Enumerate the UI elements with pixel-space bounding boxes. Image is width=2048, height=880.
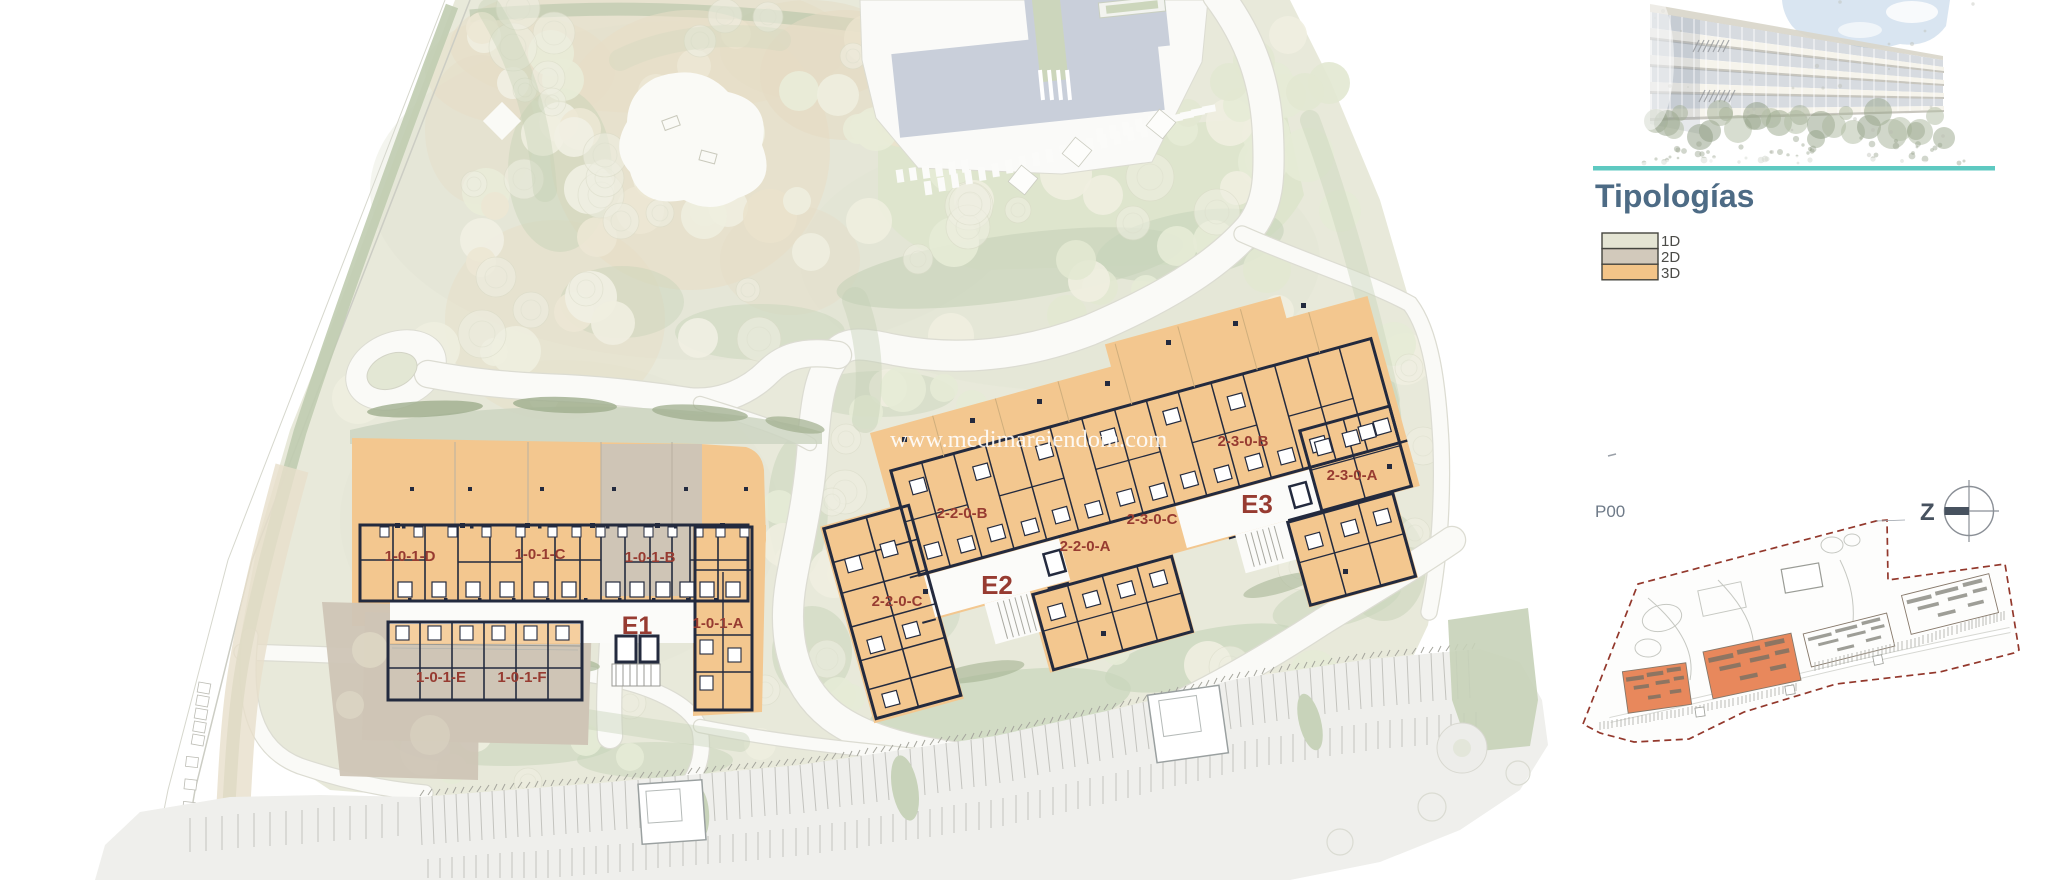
svg-text:www.medimareiendom.com: www.medimareiendom.com <box>890 426 1167 453</box>
svg-text:E2: E2 <box>981 570 1013 600</box>
svg-text:2-3-0-B: 2-3-0-B <box>1218 433 1269 450</box>
svg-text:E1: E1 <box>622 612 653 640</box>
svg-text:1-0-1-F: 1-0-1-F <box>497 669 546 686</box>
svg-text:1-0-1-D: 1-0-1-D <box>385 548 436 565</box>
svg-text:1-0-1-B: 1-0-1-B <box>625 549 676 566</box>
svg-text:2-2-0-B: 2-2-0-B <box>937 505 988 522</box>
svg-text:Z: Z <box>1920 499 1935 526</box>
svg-text:Tipologías: Tipologías <box>1595 178 1754 214</box>
svg-text:P00: P00 <box>1595 502 1625 521</box>
svg-text:2-2-0-C: 2-2-0-C <box>872 593 923 610</box>
svg-text:1D: 1D <box>1661 233 1680 250</box>
svg-text:2-3-0-A: 2-3-0-A <box>1327 467 1378 484</box>
svg-text:1-0-1-E: 1-0-1-E <box>416 669 466 686</box>
svg-text:1-0-1-A: 1-0-1-A <box>693 615 744 632</box>
svg-text:E3: E3 <box>1241 489 1273 519</box>
svg-text:1-0-1-C: 1-0-1-C <box>515 546 566 563</box>
svg-text:3D: 3D <box>1661 265 1680 282</box>
svg-text:2-2-0-A: 2-2-0-A <box>1060 538 1111 555</box>
svg-text:2D: 2D <box>1661 249 1680 266</box>
svg-text:2-3-0-C: 2-3-0-C <box>1127 511 1178 528</box>
